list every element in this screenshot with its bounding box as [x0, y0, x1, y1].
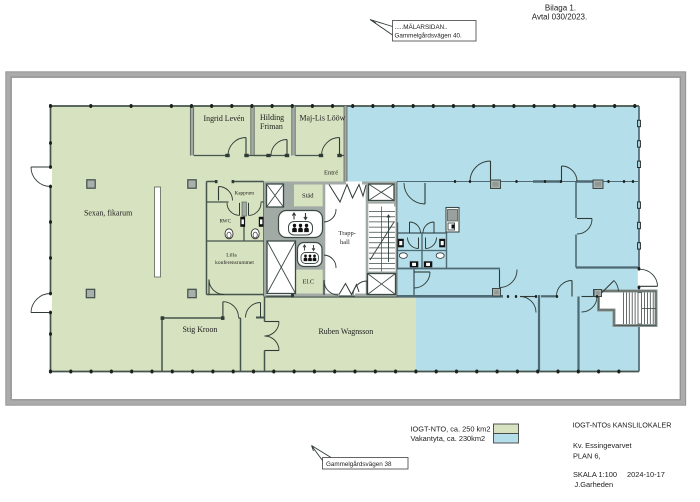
svg-text:Gammelgårdsvägen 40.: Gammelgårdsvägen 40.	[395, 32, 462, 40]
svg-text:El.C: El.C	[303, 279, 315, 286]
svg-text:Ruben Wagnsson: Ruben Wagnsson	[319, 327, 374, 336]
svg-text:konferensrummet: konferensrummet	[215, 259, 254, 266]
svg-text:Gammelgårdsvägen 38: Gammelgårdsvägen 38	[326, 460, 392, 468]
svg-text:Maj-Lis Lööw: Maj-Lis Lööw	[300, 114, 346, 123]
svg-text:Stig Kroon: Stig Kroon	[183, 325, 218, 334]
svg-text:J.Garheden: J.Garheden	[575, 480, 614, 489]
svg-text:IOGT-NTO, ca. 250 km2: IOGT-NTO, ca. 250 km2	[411, 425, 491, 434]
svg-text:Städ: Städ	[302, 193, 314, 200]
svg-text:Vakantyta, ca. 230km2: Vakantyta, ca. 230km2	[411, 434, 486, 443]
svg-text:RWC: RWC	[220, 219, 232, 225]
svg-text:Hilding: Hilding	[260, 113, 284, 122]
svg-text:Entré: Entré	[324, 170, 338, 177]
svg-text:Sexan, fikarum: Sexan, fikarum	[84, 209, 133, 218]
svg-text:.....MÄLARSIDAN..: .....MÄLARSIDAN..	[395, 23, 448, 31]
svg-text:Kv. Essingevarvet: Kv. Essingevarvet	[573, 441, 632, 450]
svg-text:Kapprum: Kapprum	[235, 191, 255, 197]
svg-text:Avtal 030/2023.: Avtal 030/2023.	[532, 12, 587, 21]
svg-text:Bilaga 1.: Bilaga 1.	[545, 4, 576, 13]
svg-text:PLAN 6,: PLAN 6,	[573, 452, 601, 461]
svg-text:Lilla: Lilla	[226, 253, 237, 259]
svg-text:hall: hall	[340, 239, 350, 246]
svg-text:SKALA 1:100: SKALA 1:100	[573, 470, 617, 479]
svg-text:Ingrid Levén: Ingrid Levén	[204, 114, 245, 123]
svg-text:2024-10-17: 2024-10-17	[627, 470, 665, 479]
svg-text:Friman: Friman	[260, 122, 283, 131]
svg-text:IOGT-NTOs KANSLILOKALER: IOGT-NTOs KANSLILOKALER	[573, 421, 672, 430]
svg-text:Trapp-: Trapp-	[339, 230, 356, 237]
